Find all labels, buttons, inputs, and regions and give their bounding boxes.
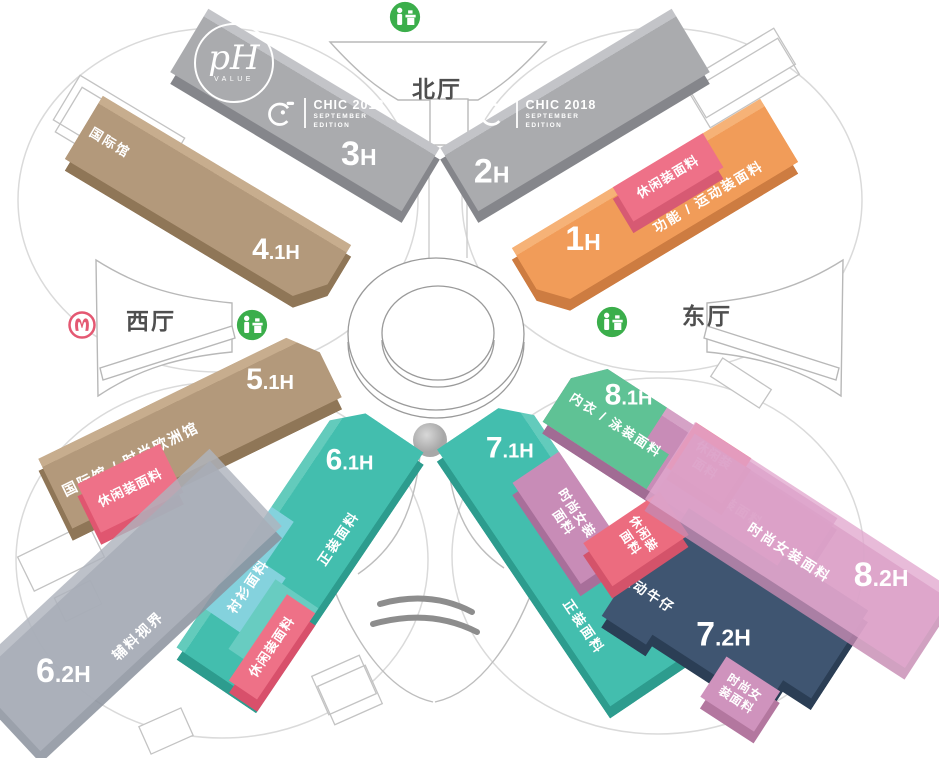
hall-6-1h-label: 6.1H (326, 445, 374, 475)
registration-icon-north (389, 1, 421, 33)
hall-7-2h-label: 7.2H (696, 617, 751, 651)
chic-2018-logo-2h: CHIC 2018 SEPTEMBER EDITION (478, 93, 596, 133)
west-lobby-label: 西厅 (126, 302, 176, 336)
ph-value-logo: pH VALUE (194, 23, 274, 103)
chic-title: CHIC 2018 (314, 98, 385, 112)
ph-monogram: pH (208, 43, 259, 74)
hall-8-1h-label: 8.1H (605, 381, 653, 411)
metro-icon (67, 310, 97, 340)
registration-icon-east (596, 306, 628, 338)
north-lobby-label: 北厅 (412, 70, 462, 104)
hall-4-1h-label: 4.1H (252, 235, 300, 265)
hall-6-2h-label: 6.2H (36, 654, 91, 688)
chic-sub2: EDITION (314, 122, 385, 129)
chic-divider (304, 98, 306, 128)
registration-icon-west (236, 309, 268, 341)
chic-sub2: EDITION (526, 122, 597, 129)
ph-caption: VALUE (214, 76, 254, 83)
hall-2h-label: 2H (474, 155, 510, 189)
hall-1h-label: 1H (565, 222, 601, 256)
hall-5-1h-label: 5.1H (246, 365, 294, 395)
east-lobby-label: 东厅 (682, 297, 732, 331)
chic-sub1: SEPTEMBER (526, 113, 597, 120)
chic-smiley-icon (478, 98, 508, 128)
chic-2018-logo-3h: CHIC 2018 SEPTEMBER EDITION (266, 93, 384, 133)
exhibition-floorplan: 3H 2H 国际馆 4.1H 休闲装面料 功能 / 运动装面料 1H 国际馆 (0, 0, 939, 758)
chic-divider (516, 98, 518, 128)
hall-3h-label: 3H (341, 137, 377, 171)
chic-sub1: SEPTEMBER (314, 113, 385, 120)
hall-7-1h-label: 7.1H (486, 433, 534, 463)
chic-smiley-icon (266, 98, 296, 128)
chic-title: CHIC 2018 (526, 98, 597, 112)
hall-8-2h-label: 8.2H (854, 558, 909, 592)
